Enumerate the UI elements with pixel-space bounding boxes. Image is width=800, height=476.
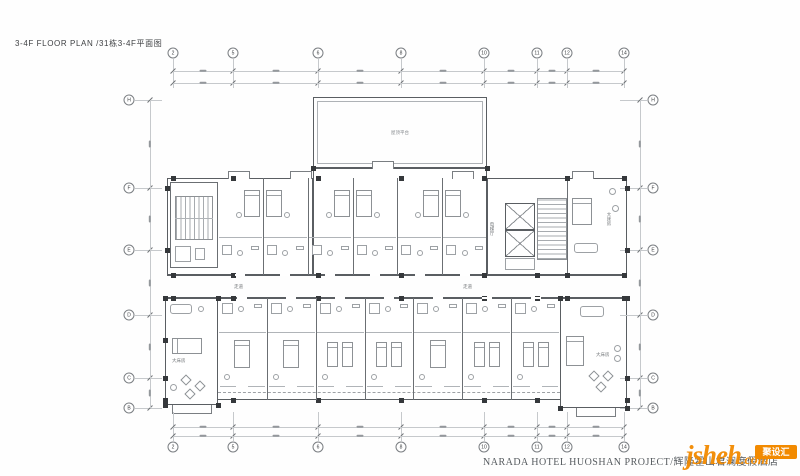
balcony-wall — [220, 386, 236, 387]
door-gap — [235, 274, 245, 276]
column — [622, 176, 627, 181]
chair — [170, 384, 177, 391]
grid-bubble-bottom: 12 — [562, 442, 573, 453]
bed-twin — [489, 342, 500, 367]
column — [171, 176, 176, 181]
toilet — [462, 250, 468, 256]
toilet — [336, 306, 342, 312]
sink — [475, 246, 483, 250]
bed-twin — [538, 342, 549, 367]
grid-bubble-right: B — [648, 403, 659, 414]
column — [625, 296, 630, 301]
door-gap — [237, 297, 247, 299]
bed-twin — [391, 342, 402, 367]
bed-king — [334, 190, 350, 217]
grid-leader — [624, 59, 625, 88]
column — [535, 398, 540, 403]
balcony-wall — [542, 386, 558, 387]
chair — [326, 212, 332, 218]
elevator-hall-label: 电梯厅 — [489, 222, 495, 236]
shower — [312, 245, 322, 255]
dim-line — [173, 83, 624, 84]
column — [163, 296, 168, 301]
balcony-wall — [297, 386, 313, 387]
column — [565, 273, 570, 278]
shower — [357, 245, 367, 255]
bathtub — [580, 306, 604, 317]
bathtub — [574, 243, 598, 253]
sink — [296, 246, 304, 250]
bay-window — [572, 171, 594, 179]
column — [565, 296, 570, 301]
door-gap — [433, 297, 443, 299]
column — [485, 166, 490, 171]
drawing-title: 3-4F FLOOR PLAN /31栋3-4F平面图 — [15, 38, 162, 49]
balcony-wall — [444, 386, 460, 387]
floor-plan-canvas: 3-4F FLOOR PLAN /31栋3-4F平面图 屋顶平台 走道 走道 电… — [0, 0, 800, 476]
shower — [515, 303, 526, 314]
chair — [224, 374, 230, 380]
column — [625, 186, 630, 191]
toilet — [238, 306, 244, 312]
bay-window — [372, 161, 394, 169]
sink — [547, 304, 555, 308]
column — [565, 176, 570, 181]
logo-name: jsheh — [686, 440, 741, 470]
balcony-wall — [318, 386, 334, 387]
column — [625, 406, 630, 411]
column — [163, 398, 168, 403]
toilet — [198, 306, 204, 312]
king-room-label-lower-left: 大床房 — [172, 358, 186, 364]
sink — [254, 304, 262, 308]
bed-king — [430, 340, 446, 368]
grid-bubble-top: 10 — [479, 48, 490, 59]
column — [558, 406, 563, 411]
column — [558, 296, 563, 301]
bed-king — [172, 338, 202, 354]
bed-twin — [376, 342, 387, 367]
shower — [417, 303, 428, 314]
elevator-shaft-2 — [505, 230, 535, 257]
chair — [614, 345, 621, 352]
door-gap — [280, 274, 290, 276]
column — [482, 398, 487, 403]
balcony-wall — [367, 386, 383, 387]
bed-king — [283, 340, 299, 368]
elevator-shaft-1 — [505, 203, 535, 230]
dim-line — [173, 427, 624, 428]
column — [625, 248, 630, 253]
grid-bubble-top: 5 — [228, 48, 239, 59]
grid-bubble-left: F — [124, 183, 135, 194]
bath-partition — [354, 237, 397, 238]
grid-bubble-top: 11 — [532, 48, 543, 59]
bath-partition — [219, 332, 266, 333]
grid-bubble-top: 6 — [313, 48, 324, 59]
sink — [400, 304, 408, 308]
grid-bubble-right: E — [648, 245, 659, 256]
room-divider — [462, 298, 463, 400]
bath-partition — [398, 237, 441, 238]
door-gap — [335, 297, 345, 299]
shower — [267, 245, 277, 255]
grid-bubble-left: C — [124, 373, 135, 384]
grid-bubble-bottom: 11 — [532, 442, 543, 453]
grid-bubble-top: 8 — [396, 48, 407, 59]
king-room-label-upper: 大床房 — [606, 212, 612, 226]
grid-bubble-right: F — [648, 183, 659, 194]
room-divider — [413, 298, 414, 400]
grid-bubble-right: H — [648, 95, 659, 106]
bed-king — [266, 190, 282, 217]
sink — [430, 246, 438, 250]
stair-landing-line — [175, 218, 213, 219]
column — [311, 166, 316, 171]
bed-twin — [342, 342, 353, 367]
bed-king — [445, 190, 461, 217]
door-gap — [531, 297, 541, 299]
room-divider — [365, 298, 366, 400]
balcony-wall — [346, 386, 362, 387]
column — [216, 403, 221, 408]
shower — [320, 303, 331, 314]
bathtub — [170, 304, 192, 314]
grid-leader — [620, 315, 647, 316]
bed-twin — [523, 342, 534, 367]
room-divider — [316, 298, 317, 400]
chair — [371, 374, 377, 380]
balcony-wall — [248, 386, 264, 387]
balcony-rail — [218, 392, 560, 393]
balcony-wall — [395, 386, 411, 387]
grid-bubble-bottom: 2 — [168, 442, 179, 453]
door-gap — [460, 274, 470, 276]
column — [399, 296, 404, 301]
grid-bubble-left: D — [124, 310, 135, 321]
bath-partition — [414, 332, 461, 333]
balcony-wall — [464, 386, 480, 387]
toilet — [417, 250, 423, 256]
corridor-label-right: 走道 — [463, 284, 472, 290]
door-gap — [286, 297, 296, 299]
shower — [369, 303, 380, 314]
grid-bubble-top: 12 — [562, 48, 573, 59]
bath-partition — [463, 332, 510, 333]
bath-partition — [443, 237, 486, 238]
column — [231, 296, 236, 301]
column — [171, 296, 176, 301]
toilet — [385, 306, 391, 312]
grid-bubble-right: D — [648, 310, 659, 321]
grid-bubble-top: 2 — [168, 48, 179, 59]
grid-bubble-left: E — [124, 245, 135, 256]
dim-line — [173, 71, 624, 72]
room-divider — [511, 298, 512, 400]
toilet — [372, 250, 378, 256]
column — [216, 296, 221, 301]
grid-bubble-top: 14 — [619, 48, 630, 59]
bath-partition — [366, 332, 413, 333]
elevator-service-room — [505, 258, 535, 270]
grid-bubble-bottom: 14 — [619, 442, 630, 453]
stair-core-mid — [537, 198, 567, 260]
column — [622, 273, 627, 278]
door-gap — [325, 274, 335, 276]
bed-king — [234, 340, 250, 368]
sink — [449, 304, 457, 308]
bed-king — [356, 190, 372, 217]
lower-left-baywindow — [172, 405, 212, 414]
door-gap — [384, 297, 394, 299]
grid-bubble-left: B — [124, 403, 135, 414]
balcony-wall — [493, 386, 509, 387]
sink — [385, 246, 393, 250]
column — [165, 186, 170, 191]
column — [625, 398, 630, 403]
dim-line — [173, 436, 624, 437]
bed-king — [572, 198, 592, 225]
sink — [303, 304, 311, 308]
chair — [374, 212, 380, 218]
column — [399, 398, 404, 403]
balcony-wall — [415, 386, 431, 387]
bed-twin — [474, 342, 485, 367]
toilet — [287, 306, 293, 312]
chair — [609, 188, 616, 195]
column — [535, 273, 540, 278]
lower-right-baywindow — [576, 408, 616, 417]
grid-bubble-bottom: 8 — [396, 442, 407, 453]
chair — [612, 205, 619, 212]
corridor-label-left: 走道 — [234, 284, 243, 290]
door-gap — [482, 297, 492, 299]
grid-bubble-left: H — [124, 95, 135, 106]
bath-partition — [317, 332, 364, 333]
stair-shaft-room — [175, 246, 191, 262]
sink — [251, 246, 259, 250]
bath-partition — [268, 332, 315, 333]
stair-service-room — [195, 248, 205, 260]
room-divider — [567, 178, 568, 275]
column — [171, 273, 176, 278]
sink — [352, 304, 360, 308]
chair — [614, 355, 621, 362]
shower — [446, 245, 456, 255]
column — [165, 248, 170, 253]
chair — [236, 212, 242, 218]
door-gap — [415, 274, 425, 276]
column — [163, 338, 168, 343]
grid-bubble-bottom: 6 — [313, 442, 324, 453]
shower — [222, 303, 233, 314]
bed-twin — [327, 342, 338, 367]
bath-partition — [309, 237, 352, 238]
sink — [498, 304, 506, 308]
shower — [401, 245, 411, 255]
bath-partition — [512, 332, 559, 333]
shower — [271, 303, 282, 314]
bed-king — [423, 190, 439, 217]
balcony-wall — [269, 386, 285, 387]
door-gap — [370, 274, 380, 276]
roof-terrace-label: 屋顶平台 — [314, 130, 486, 136]
chair — [322, 374, 328, 380]
bed-king — [566, 336, 584, 366]
roof-terrace: 屋顶平台 — [313, 97, 487, 168]
chair — [273, 374, 279, 380]
bed-king — [244, 190, 260, 217]
room-divider — [267, 298, 268, 400]
chair — [284, 212, 290, 218]
sink — [341, 246, 349, 250]
grid-bubble-bottom: 5 — [228, 442, 239, 453]
column — [625, 376, 630, 381]
column — [163, 376, 168, 381]
king-room-label-lower-right: 大床房 — [596, 352, 610, 358]
bath-partition — [264, 237, 307, 238]
shower — [466, 303, 477, 314]
column — [163, 403, 168, 408]
bath-partition — [219, 237, 262, 238]
grid-bubble-bottom: 10 — [479, 442, 490, 453]
shower — [222, 245, 232, 255]
logo-badge[interactable]: 聚设汇 — [755, 445, 797, 459]
column — [231, 398, 236, 403]
grid-leader — [620, 100, 647, 101]
grid-bubble-right: C — [648, 373, 659, 384]
balcony-wall — [513, 386, 529, 387]
